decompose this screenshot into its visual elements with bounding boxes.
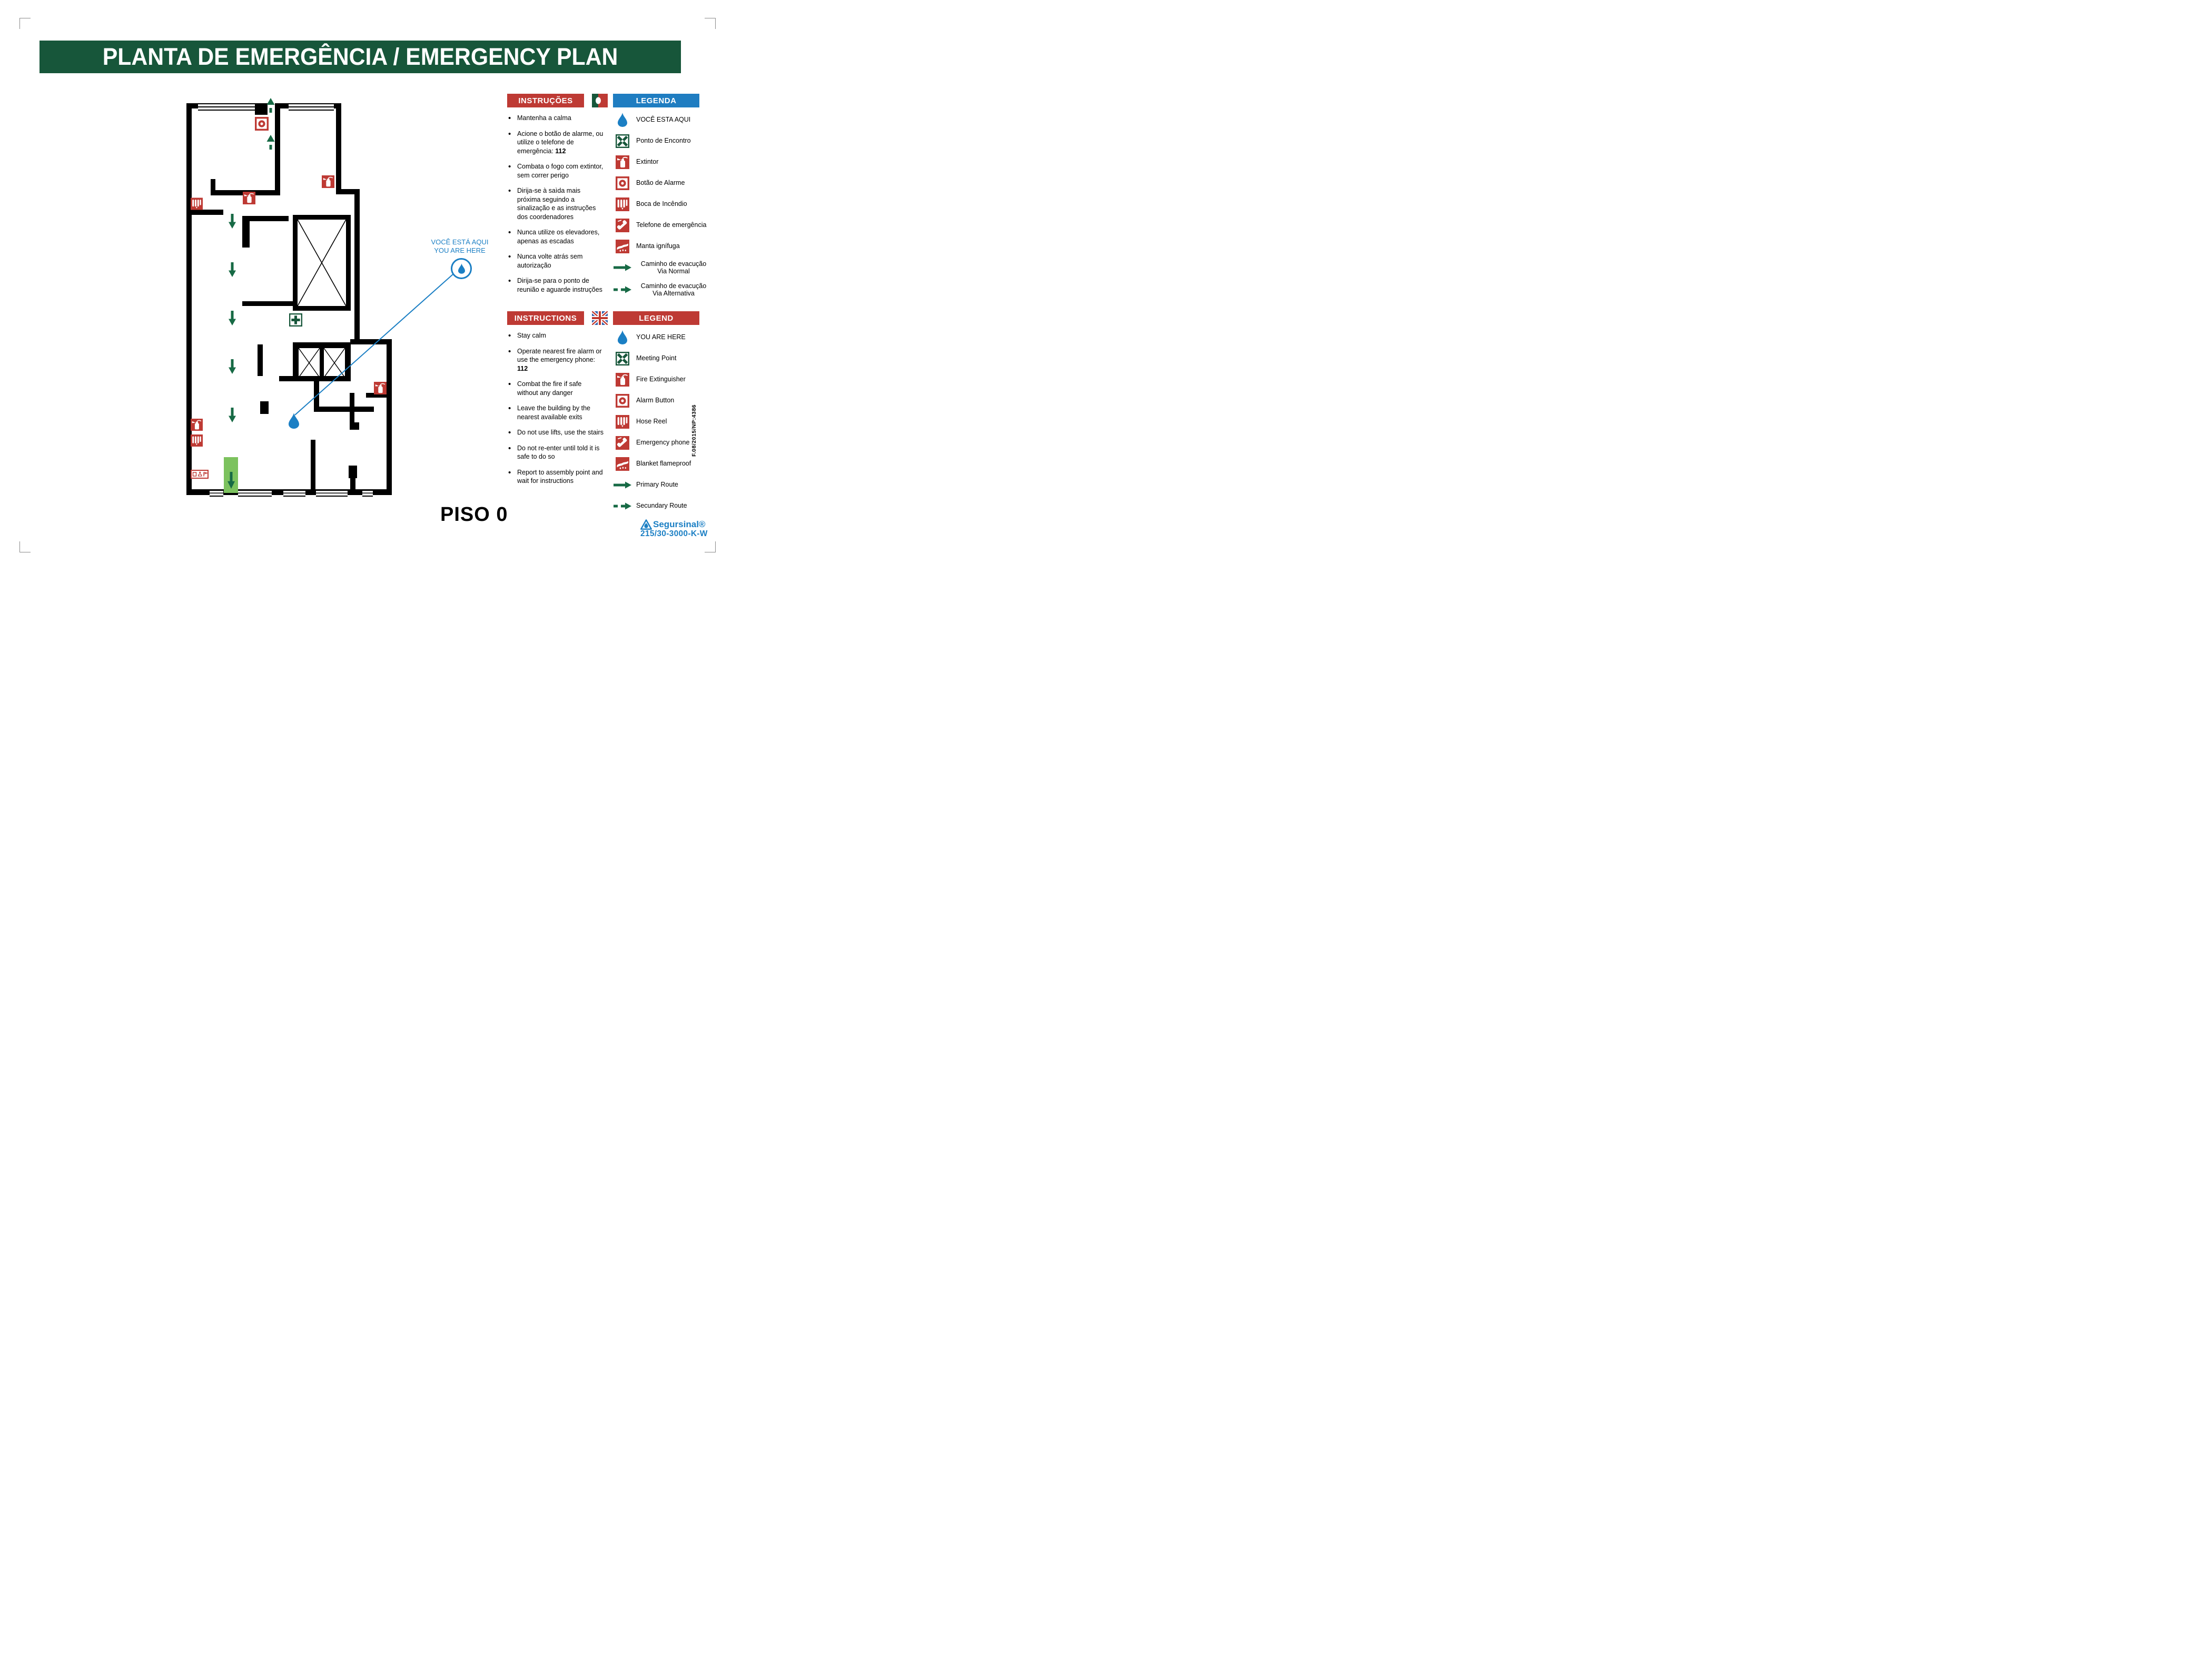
document-reference: F.08/2015/NP:4386	[691, 404, 697, 457]
elevator-shaft	[298, 347, 321, 379]
window	[238, 490, 272, 497]
wall	[275, 103, 280, 194]
evacuation-arrow-icon	[228, 262, 236, 277]
meeting-point-icon	[613, 352, 632, 365]
droplet-icon	[613, 330, 632, 344]
arrow-dashed-icon	[613, 286, 632, 293]
wall	[211, 179, 215, 190]
meeting-point-icon	[613, 134, 632, 148]
emergency-phone-icon	[613, 219, 632, 232]
brand-name: Segursinal®	[653, 520, 705, 529]
evacuation-arrow-icon	[228, 214, 236, 229]
legend-item: Botão de Alarme	[613, 176, 735, 190]
window	[316, 490, 348, 497]
legend-item: Hose Reel	[613, 414, 735, 429]
legend-item: Boca de Incêndio	[613, 197, 735, 211]
pt-instructions-header: INSTRUÇÕES	[507, 94, 584, 107]
legend-item: Primary Route	[613, 478, 735, 492]
brand-code: 215/30-3000-K-W	[640, 530, 725, 538]
hose-reel-icon	[613, 415, 632, 429]
evacuation-arrow-icon	[228, 311, 236, 325]
pt-legend-list: VOCÊ ESTA AQUIPonto de EncontroExtintorB…	[613, 113, 735, 304]
brand-block: Segursinal® 215/30-3000-K-W	[640, 519, 725, 538]
legend-label: Fire Extinguisher	[636, 375, 686, 383]
window	[362, 490, 373, 497]
wall	[314, 407, 374, 412]
alternative-route-arrow-icon	[266, 135, 275, 151]
legend-label: Emergency phone	[636, 439, 689, 446]
legend-label: Caminho de evacuçãoVia Normal	[634, 260, 713, 275]
wall	[255, 103, 268, 115]
portugal-flag-icon	[592, 94, 608, 107]
legend-label: Secundary Route	[636, 502, 687, 509]
wall	[350, 422, 359, 430]
you-are-here-marker-icon	[289, 413, 299, 429]
safety-equipment-sign-icon	[191, 470, 209, 479]
wall	[242, 221, 250, 248]
wall	[186, 103, 198, 108]
evacuation-arrow-icon	[227, 472, 235, 489]
fire-extinguisher-icon	[191, 418, 203, 431]
instruction-item: Do not use lifts, use the stairs	[507, 428, 604, 437]
instruction-item: Leave the building by the nearest availa…	[507, 404, 604, 421]
emergency-plan-poster: PLANTA DE EMERGÊNCIA / EMERGENCY PLAN	[0, 0, 735, 560]
crop-mark-icon	[19, 541, 31, 552]
fire-extinguisher-icon	[322, 175, 334, 188]
instruction-item: Combat the fire if safe without any dang…	[507, 380, 604, 397]
wall	[242, 216, 289, 221]
legend-label: Primary Route	[636, 481, 678, 488]
hose-reel-icon	[191, 434, 203, 447]
fire-blanket-icon	[613, 457, 632, 471]
hose-reel-icon	[191, 197, 203, 210]
wall	[387, 339, 392, 495]
crop-mark-icon	[705, 541, 716, 552]
alternative-route-arrow-icon	[266, 98, 275, 114]
pt-legend-header: LEGENDA	[613, 94, 699, 107]
fire-blanket-icon	[613, 240, 632, 253]
legend-item: YOU ARE HERE	[613, 330, 735, 344]
wall	[279, 376, 350, 381]
fire-extinguisher-icon	[374, 382, 387, 394]
en-instructions-list: Stay calmOperate nearest fire alarm or u…	[507, 331, 604, 492]
legend-label: Hose Reel	[636, 418, 667, 425]
legend-label: Ponto de Encontro	[636, 137, 691, 144]
callout-line1: VOCÊ ESTÁ AQUI	[420, 238, 499, 246]
title-banner: PLANTA DE EMERGÊNCIA / EMERGENCY PLAN	[39, 41, 681, 73]
emergency-phone-icon	[613, 436, 632, 450]
legend-item: Caminho de evacuçãoVia Alternativa	[613, 282, 735, 298]
legend-item: Secundary Route	[613, 499, 735, 513]
legend-item: Telefone de emergência	[613, 218, 735, 232]
shaft-room	[293, 215, 351, 311]
instruction-item: Nunca volte atrás sem autorização	[507, 252, 604, 270]
legend-label: Botão de Alarme	[636, 179, 685, 186]
legend-label: Boca de Incêndio	[636, 200, 687, 207]
legend-item: Extintor	[613, 155, 735, 169]
alarm-button-icon	[613, 176, 632, 190]
instruction-item: Combata o fogo com extintor, sem correr …	[507, 162, 604, 180]
fire-extinguisher-icon	[613, 373, 632, 387]
instruction-item: Mantenha a calma	[507, 114, 604, 123]
instruction-item: Do not re-enter until told it is safe to…	[507, 444, 604, 461]
uk-flag-icon	[592, 311, 608, 325]
legend-label: Manta ignífuga	[636, 242, 680, 250]
fire-extinguisher-icon	[613, 155, 632, 169]
legend-item: Meeting Point	[613, 351, 735, 365]
legend-label: Caminho de evacuçãoVia Alternativa	[634, 282, 713, 298]
arrow-dashed-icon	[613, 502, 632, 510]
wall	[349, 466, 357, 478]
wall	[260, 401, 269, 414]
instruction-item: Operate nearest fire alarm or use the em…	[507, 347, 604, 373]
alarm-button-icon	[613, 394, 632, 408]
legend-label: Meeting Point	[636, 354, 676, 362]
elevator-shaft	[323, 347, 346, 379]
en-legend-list: YOU ARE HEREMeeting PointFire Extinguish…	[613, 330, 735, 520]
legend-item: Manta ignífuga	[613, 239, 735, 253]
you-are-here-label: VOCÊ ESTÁ AQUI YOU ARE HERE	[420, 238, 499, 255]
arrow-solid-icon	[613, 481, 632, 489]
hose-reel-icon	[613, 197, 632, 211]
wall	[350, 393, 354, 427]
legend-item: Alarm Button	[613, 393, 735, 408]
en-legend-header: LEGEND	[613, 311, 699, 325]
crop-mark-icon	[19, 18, 31, 29]
legend-label: VOCÊ ESTA AQUI	[636, 116, 690, 123]
legend-item: VOCÊ ESTA AQUI	[613, 113, 735, 127]
evacuation-arrow-icon	[228, 408, 236, 422]
window	[289, 103, 334, 111]
legend-label: YOU ARE HERE	[636, 333, 686, 341]
instruction-item: Dirija-se para o ponto de reunião e agua…	[507, 276, 604, 294]
first-aid-icon	[289, 313, 302, 327]
window	[198, 103, 255, 111]
legend-item: Caminho de evacuçãoVia Normal	[613, 260, 735, 275]
legend-label: Extintor	[636, 158, 658, 165]
instruction-item: Nunca utilize os elevadores, apenas as e…	[507, 228, 604, 245]
alarm-button-icon	[255, 117, 269, 131]
wall	[258, 344, 263, 376]
pt-instructions-list: Mantenha a calmaAcione o botão de alarme…	[507, 114, 604, 301]
wall	[350, 339, 392, 344]
wall	[354, 189, 360, 344]
legend-label: Telefone de emergência	[636, 221, 706, 229]
page-title: PLANTA DE EMERGÊNCIA / EMERGENCY PLAN	[103, 43, 618, 71]
legend-item: Ponto de Encontro	[613, 134, 735, 148]
wall	[280, 103, 289, 108]
legend-item: Blanket flameproof	[613, 457, 735, 471]
callout-line2: YOU ARE HERE	[420, 246, 499, 255]
crop-mark-icon	[705, 18, 716, 29]
instruction-item: Acione o botão de alarme, ou utilize o t…	[507, 130, 604, 156]
wall	[336, 103, 341, 194]
droplet-icon	[613, 113, 632, 127]
arrow-solid-icon	[613, 264, 632, 271]
you-are-here-badge	[451, 258, 472, 279]
legend-label: Blanket flameproof	[636, 460, 691, 467]
legend-item: Emergency phone	[613, 436, 735, 450]
instruction-item: Report to assembly point and wait for in…	[507, 468, 604, 486]
evacuation-arrow-icon	[228, 359, 236, 374]
legend-label: Alarm Button	[636, 397, 674, 404]
wall	[350, 478, 355, 495]
wall	[311, 440, 315, 495]
floor-label: PISO 0	[440, 503, 508, 526]
wall	[186, 210, 223, 215]
window	[210, 490, 223, 497]
instruction-item: Dirija-se à saìda mais próxima seguindo …	[507, 186, 604, 221]
segursinal-logo-icon	[640, 519, 652, 530]
legend-item: Fire Extinguisher	[613, 372, 735, 387]
en-instructions-header: INSTRUCTIONS	[507, 311, 584, 325]
wall	[242, 301, 293, 306]
window	[283, 490, 305, 497]
fire-extinguisher-icon	[243, 192, 255, 204]
droplet-icon	[458, 263, 465, 274]
instruction-item: Stay calm	[507, 331, 604, 340]
